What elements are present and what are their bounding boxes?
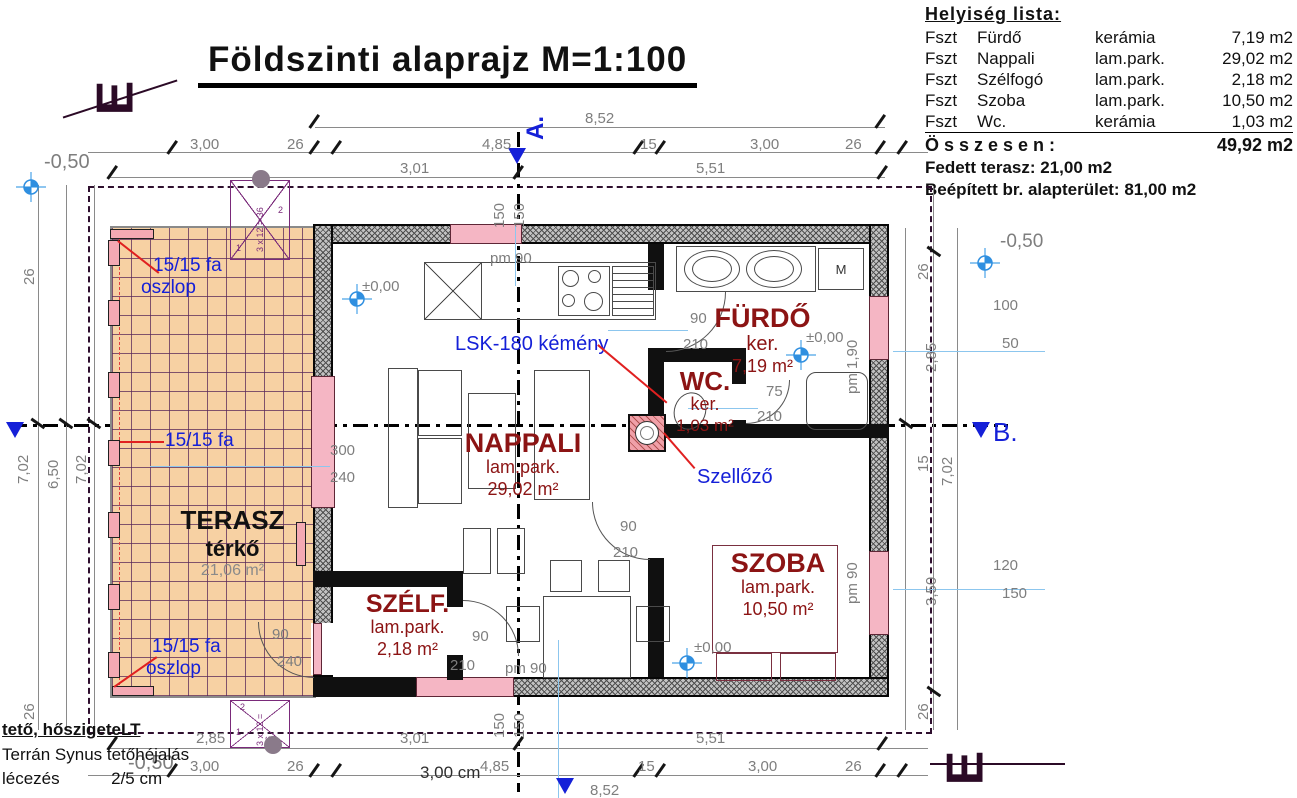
- cell-area: 2,18 m2: [1191, 69, 1293, 90]
- fridge: [424, 262, 482, 320]
- stairs-marker-dot: [252, 170, 270, 188]
- dim: 15: [916, 446, 931, 472]
- kitchen-sink-drainer: [612, 266, 654, 316]
- helper-line: [893, 351, 1045, 352]
- post-annotation-bottom: 15/15 fa oszlop: [152, 636, 221, 680]
- roof-note-line: lécezés 2/5 cm: [2, 767, 189, 792]
- leader-line: [120, 441, 164, 443]
- wood-post: [108, 372, 120, 398]
- roof-note-word: lécezés: [2, 769, 60, 788]
- wood-post: [108, 440, 120, 466]
- room-label-szoba: SZOBA lam.park. 10,50 m²: [718, 550, 838, 620]
- stairs-marker-dot: [264, 736, 282, 754]
- helper-line: [608, 330, 688, 331]
- chair: [636, 606, 670, 642]
- cell-area: 7,19 m2: [1191, 27, 1293, 48]
- dim: 3,50: [924, 562, 939, 606]
- dim: 150: [512, 698, 527, 738]
- annotation-line: oszlop: [141, 277, 222, 299]
- room-list: Helyiség lista: Fszt Fürdő kerámia 7,19 …: [925, 4, 1293, 201]
- table-row: Fszt Szoba lam.park. 10,50 m2: [925, 90, 1293, 111]
- dim: 26: [916, 690, 931, 720]
- dim-line: [905, 228, 906, 730]
- cm-note: 3,00 cm: [420, 764, 480, 781]
- level-text: ±0,00: [362, 279, 399, 294]
- bath-sink-inner: [692, 256, 732, 282]
- cell-floor: Fszt: [925, 90, 977, 111]
- dim: pm 90: [490, 251, 532, 266]
- room-label-szelfogo: SZÉLF. lam.park. 2,18 m²: [355, 592, 460, 660]
- section-label-a-top: A.: [522, 98, 550, 140]
- room-name: SZÉLF.: [355, 592, 460, 617]
- door-terasz-leaf: [313, 623, 322, 675]
- sofa-cushion: [418, 370, 462, 436]
- burner: [562, 270, 579, 287]
- dim: 3,00: [190, 759, 219, 774]
- post-annotation-top: 15/15 fa oszlop: [153, 255, 222, 299]
- annotation-line: 15/15 fa: [152, 636, 221, 658]
- cell-area: 1,03 m2: [1191, 111, 1293, 132]
- total-label: Ö s s z e s e n :: [925, 133, 1055, 157]
- dim-line: [315, 127, 885, 128]
- gross-area: Beépített br. alapterület: 81,00 m2: [925, 179, 1293, 201]
- burner: [588, 270, 601, 283]
- section-triangle-a-bottom: [556, 778, 574, 794]
- room-name: NAPPALI: [448, 430, 598, 457]
- dim: 120: [993, 558, 1018, 573]
- dim: pm 90: [845, 548, 860, 604]
- dim: 150: [1002, 586, 1027, 601]
- chair: [550, 560, 582, 592]
- cell-room: Szélfogó: [977, 69, 1095, 90]
- room-area: 10,50 m²: [718, 599, 838, 621]
- level-marker: [16, 172, 46, 207]
- dim-line: [88, 775, 928, 776]
- dim-line: [110, 748, 928, 749]
- level-text: -0,50: [44, 152, 90, 172]
- window-szoba: [869, 551, 889, 635]
- stairs-n1: 1: [236, 728, 241, 737]
- cell-floor: Fszt: [925, 69, 977, 90]
- armchair: [463, 528, 491, 574]
- chimney-flue-inner: [640, 426, 654, 440]
- room-finish: lam.park.: [355, 617, 460, 639]
- cell-finish: lam.park.: [1095, 69, 1191, 90]
- dim: 3,00: [750, 137, 779, 152]
- north-arrow-icon: E: [939, 751, 991, 786]
- cell-room: Fürdő: [977, 27, 1095, 48]
- dim-line: [110, 177, 885, 178]
- cell-room: Wc.: [977, 111, 1095, 132]
- dim: 26: [287, 137, 304, 152]
- section-triangle-b-left: [6, 422, 24, 438]
- covered-terrace: Fedett terasz: 21,00 m2: [925, 157, 1293, 179]
- dim-overall-bottom: 8,52: [590, 783, 619, 798]
- annotation-line: oszlop: [146, 658, 221, 680]
- dim: 150: [492, 698, 507, 738]
- chair: [506, 606, 540, 642]
- table-row: Fszt Nappali lam.park. 29,02 m2: [925, 48, 1293, 69]
- cell-floor: Fszt: [925, 111, 977, 132]
- dim: 3,01: [400, 161, 429, 176]
- stairs-n2: 2: [240, 703, 245, 712]
- room-finish: lam.park.: [718, 577, 838, 599]
- cell-area: 29,02 m2: [1191, 48, 1293, 69]
- table-row: Fszt Wc. kerámia 1,03 m2: [925, 111, 1293, 133]
- dim-line: [933, 186, 934, 730]
- cell-floor: Fszt: [925, 27, 977, 48]
- north-arrow-icon: E: [89, 81, 141, 116]
- wood-post: [108, 652, 120, 678]
- dim: 210: [757, 409, 782, 424]
- wood-post: [112, 686, 154, 696]
- stairs-n2: 2: [278, 206, 283, 215]
- room-area: 2,18 m²: [355, 639, 460, 661]
- dim: 90: [620, 519, 637, 534]
- room-name: WC.: [660, 368, 750, 394]
- room-area: 1,03 m²: [660, 416, 750, 436]
- dim: 50: [1002, 336, 1019, 351]
- level-text: ±0,00: [806, 330, 843, 345]
- dim-overall-top: 8,52: [585, 111, 614, 126]
- room-finish: ker.: [660, 394, 750, 416]
- washing-machine: M: [818, 248, 864, 290]
- stairs-formula: 3 x 12 = 36: [256, 188, 265, 252]
- dim: 210: [613, 545, 638, 560]
- dim-line: [94, 185, 95, 730]
- dim: 3,00: [190, 137, 219, 152]
- post-annotation-mid: 15/15 fa: [165, 430, 234, 452]
- cell-room: Nappali: [977, 48, 1095, 69]
- dim: 26: [845, 137, 862, 152]
- dim: pm 90: [505, 661, 547, 676]
- dim-line: [66, 185, 67, 730]
- roof-note-value: 2/5 cm: [111, 769, 162, 788]
- room-name: SZOBA: [718, 550, 838, 577]
- helper-line: [558, 640, 559, 798]
- wood-post: [108, 512, 120, 538]
- room-name: FÜRDŐ: [700, 305, 825, 332]
- drawing-title: Földszinti alaprajz M=1:100: [198, 40, 697, 88]
- dim: 3,01: [400, 731, 429, 746]
- dim: 15: [638, 759, 655, 774]
- page-title-wrap: Földszinti alaprajz M=1:100: [198, 40, 697, 80]
- level-text: ±0,00: [694, 640, 731, 655]
- dim: 26: [916, 250, 931, 280]
- bath-sink-inner: [754, 256, 794, 282]
- dim: 2,85: [924, 328, 939, 372]
- dim: 90: [690, 311, 707, 326]
- section-triangle-b-right: [972, 422, 990, 438]
- roof-notes: tető, hőszigeteLT Terrán Synus tetőhéjal…: [2, 718, 189, 792]
- roof-note-title: tető, hőszigeteLT: [2, 718, 189, 743]
- burner: [584, 292, 603, 311]
- dim: 26: [287, 759, 304, 774]
- dim: 26: [845, 759, 862, 774]
- vent-annotation: Szellőző: [697, 466, 773, 489]
- room-list-header: Helyiség lista:: [925, 4, 1293, 25]
- armchair: [497, 528, 525, 574]
- helper-line: [150, 466, 330, 467]
- dim: 210: [450, 658, 475, 673]
- section-label-b: B.: [993, 418, 1018, 448]
- level-marker: [970, 248, 1000, 283]
- pillow: [716, 653, 772, 681]
- dim: 26: [22, 255, 37, 285]
- floor-plan-canvas: Földszinti alaprajz M=1:100 Helyiség lis…: [0, 0, 1297, 798]
- cell-finish: kerámia: [1095, 27, 1191, 48]
- room-name: TERASZ: [160, 505, 305, 536]
- dim: 7,02: [74, 440, 89, 484]
- wood-post: [110, 229, 154, 239]
- roof-note-line: Terrán Synus tetőhéjalás: [2, 743, 189, 768]
- dim: 150: [492, 188, 507, 228]
- table-row: Fszt Fürdő kerámia 7,19 m2: [925, 27, 1293, 48]
- room-label-nappali: NAPPALI lam.park. 29,02 m²: [448, 430, 598, 500]
- wood-post: [108, 240, 120, 266]
- cell-room: Szoba: [977, 90, 1095, 111]
- dim-line: [38, 185, 39, 730]
- dim: 7,02: [940, 442, 955, 486]
- table-row: Fszt Szélfogó lam.park. 2,18 m2: [925, 69, 1293, 90]
- dim: 2,85: [196, 731, 225, 746]
- burner: [562, 294, 575, 307]
- cell-finish: kerámia: [1095, 111, 1191, 132]
- wood-post: [108, 584, 120, 610]
- room-area: 29,02 m²: [448, 479, 598, 501]
- stairs-n1: 1: [236, 244, 241, 253]
- cell-finish: lam.park.: [1095, 48, 1191, 69]
- dim: 15: [640, 137, 657, 152]
- cell-floor: Fszt: [925, 48, 977, 69]
- dim: 240: [330, 470, 355, 485]
- door-entry: [416, 677, 514, 697]
- room-area: 21,06 m²: [160, 562, 305, 580]
- dim: 4,85: [480, 759, 509, 774]
- chimney-annotation: LSK-180 kémény: [455, 333, 608, 356]
- cell-finish: lam.park.: [1095, 90, 1191, 111]
- dim: 5,51: [696, 161, 725, 176]
- dim: 90: [472, 629, 489, 644]
- washing-machine-label: M: [836, 262, 847, 277]
- room-finish: lam.park.: [448, 457, 598, 479]
- dim: pm 1,90: [845, 322, 860, 394]
- dim: 6,50: [46, 445, 61, 489]
- dim: 240: [277, 654, 302, 669]
- dim: 150: [512, 188, 527, 228]
- total-row: Ö s s z e s e n : 49,92 m2: [925, 133, 1293, 157]
- total-value: 49,92 m2: [1217, 133, 1293, 157]
- wood-post: [108, 300, 120, 326]
- dim: 90: [272, 627, 289, 642]
- cell-area: 10,50 m2: [1191, 90, 1293, 111]
- dim: 5,51: [696, 731, 725, 746]
- dim: 75: [766, 384, 783, 399]
- chair: [598, 560, 630, 592]
- wall-szelfogo-top: [313, 571, 463, 587]
- sofa-back: [388, 368, 418, 508]
- dim: 4,85: [482, 137, 511, 152]
- annotation-line: 15/15 fa: [153, 255, 222, 277]
- dim: 210: [683, 337, 708, 352]
- room-label-terasz: TERASZ térkő 21,06 m²: [160, 505, 305, 580]
- wall-bottom-solid: [313, 677, 417, 697]
- pillow: [780, 653, 836, 681]
- dim: 100: [993, 298, 1018, 313]
- dim: 3,00: [748, 759, 777, 774]
- wall-top: [313, 224, 889, 244]
- room-finish: térkő: [160, 536, 305, 562]
- dim-line: [957, 228, 958, 730]
- dim: 7,02: [16, 440, 31, 484]
- dim: 26: [22, 690, 37, 720]
- dining-table: [543, 596, 631, 678]
- dim: 300: [330, 443, 355, 458]
- level-text: -0,50: [1000, 232, 1043, 251]
- room-label-wc: WC. ker. 1,03 m²: [660, 368, 750, 436]
- window-furdo: [869, 296, 889, 360]
